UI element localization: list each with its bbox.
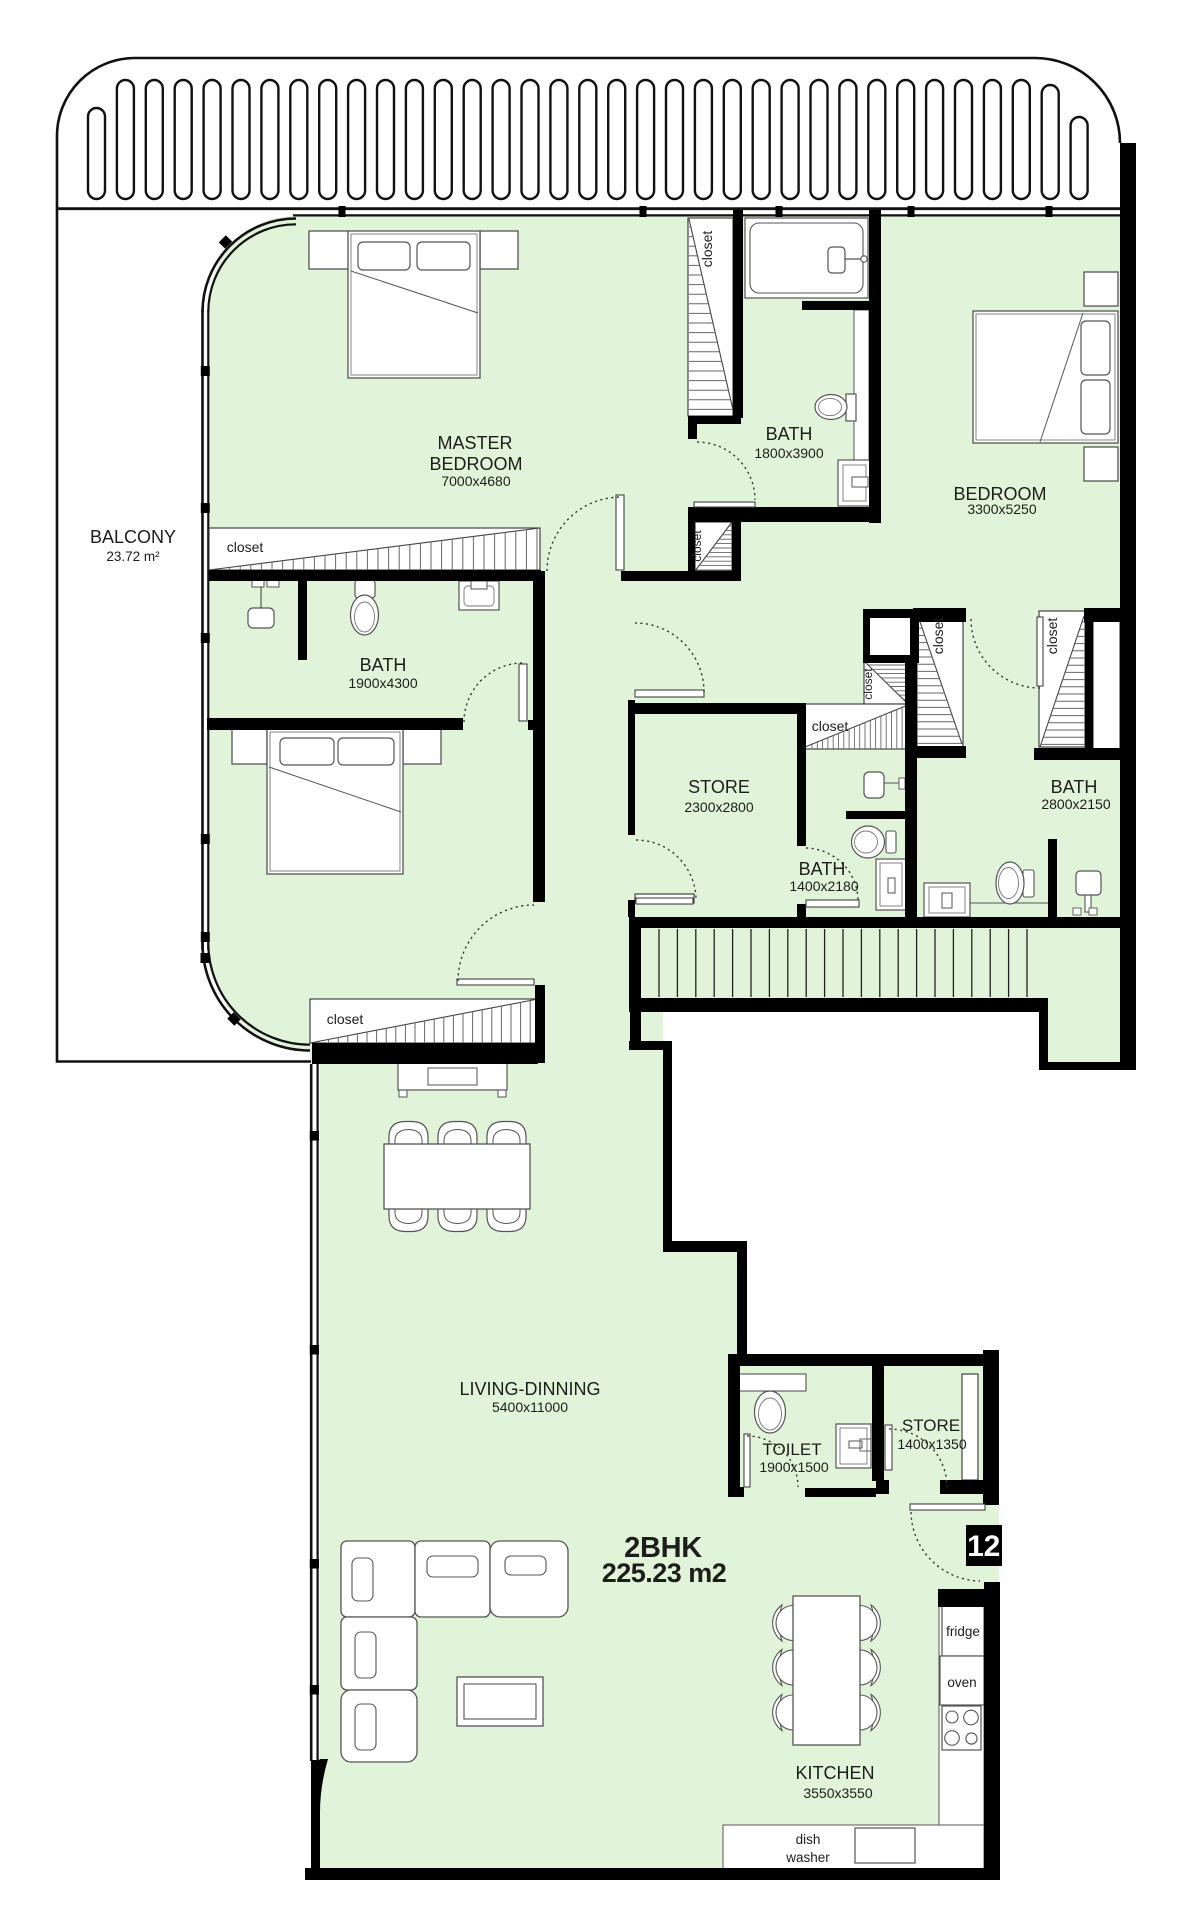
svg-text:1900x1500: 1900x1500 <box>759 1459 829 1475</box>
svg-text:KITCHEN: KITCHEN <box>795 1763 874 1783</box>
svg-text:2: 2 <box>984 1530 1001 1563</box>
svg-text:BATH: BATH <box>766 424 813 444</box>
svg-text:dish: dish <box>796 1832 821 1847</box>
svg-text:1: 1 <box>967 1530 985 1563</box>
svg-text:3300x5250: 3300x5250 <box>967 501 1037 517</box>
svg-text:fridge: fridge <box>946 1624 980 1639</box>
svg-text:closet: closet <box>861 668 875 700</box>
svg-text:closet: closet <box>1044 618 1060 655</box>
svg-text:STORE: STORE <box>902 1416 960 1435</box>
svg-text:1800x3900: 1800x3900 <box>754 445 824 461</box>
svg-text:1900x4300: 1900x4300 <box>348 675 418 691</box>
svg-text:3550x3550: 3550x3550 <box>803 1785 873 1801</box>
svg-text:225.23 m2: 225.23 m2 <box>602 1558 727 1588</box>
svg-text:STORE: STORE <box>688 777 750 797</box>
svg-text:7000x4680: 7000x4680 <box>441 473 511 489</box>
svg-text:TOILET: TOILET <box>762 1440 821 1459</box>
svg-text:2300x2800: 2300x2800 <box>684 799 754 815</box>
svg-text:23.72 m²: 23.72 m² <box>106 549 160 564</box>
svg-text:1400x2180: 1400x2180 <box>789 878 859 894</box>
svg-text:1400x1350: 1400x1350 <box>897 1436 967 1452</box>
svg-text:BALCONY: BALCONY <box>90 527 176 547</box>
svg-text:BEDROOM: BEDROOM <box>429 454 522 474</box>
svg-text:5400x11000: 5400x11000 <box>492 1399 568 1415</box>
svg-text:closet: closet <box>227 539 264 555</box>
svg-text:closet: closet <box>690 530 704 562</box>
svg-text:2800x2150: 2800x2150 <box>1041 796 1111 812</box>
svg-text:closet: closet <box>930 618 946 655</box>
svg-text:BATH: BATH <box>1051 777 1098 797</box>
svg-text:LIVING-DINNING: LIVING-DINNING <box>459 1379 600 1399</box>
svg-text:closet: closet <box>327 1011 364 1027</box>
svg-text:oven: oven <box>947 1675 976 1690</box>
svg-text:MASTER: MASTER <box>437 433 512 453</box>
svg-text:closet: closet <box>699 231 715 268</box>
svg-text:BATH: BATH <box>360 655 407 675</box>
svg-text:closet: closet <box>812 718 849 734</box>
svg-text:washer: washer <box>785 1850 830 1865</box>
svg-text:BATH: BATH <box>799 859 846 879</box>
